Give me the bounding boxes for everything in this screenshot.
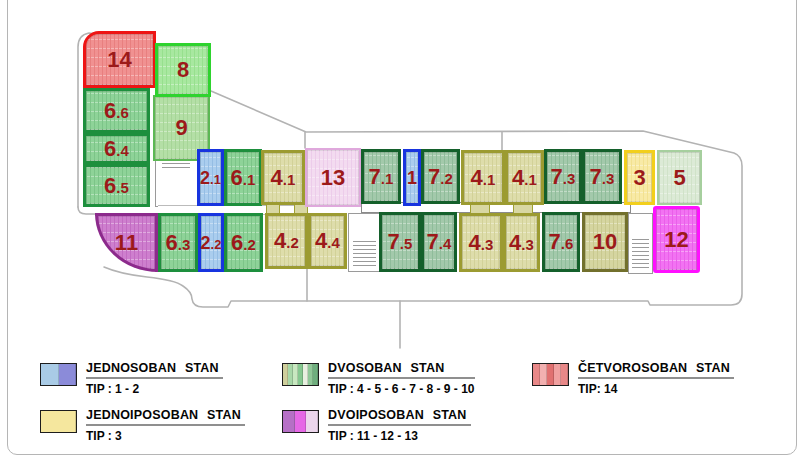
unit-12[interactable]: 12	[653, 206, 700, 273]
legend-item-cetvorosoban: ČETVOROSOBAN STAN TIP: 14	[532, 361, 734, 396]
stairs-icon	[353, 238, 376, 266]
unit-14[interactable]: 14	[83, 31, 156, 88]
unit-label: 14	[107, 49, 131, 71]
unit-label: 5	[673, 167, 685, 189]
legend-swatch	[282, 363, 319, 386]
legend-swatch	[40, 410, 77, 433]
unit-label: 6.4	[104, 138, 129, 160]
unit-label: 6.2	[231, 232, 256, 254]
unit-6.2[interactable]: 6.2	[224, 213, 263, 272]
unit-8[interactable]: 8	[155, 43, 211, 97]
legend-swatch	[532, 363, 569, 386]
unit-label: 7.4	[427, 231, 452, 253]
legend-swatch	[40, 363, 77, 386]
unit-label: 4.1	[471, 167, 496, 189]
unit-6.4[interactable]: 6.4	[83, 133, 150, 164]
legend-title: DVOIPOSOBAN STAN	[328, 408, 471, 426]
unit-7.5[interactable]: 7.5	[379, 212, 421, 272]
unit-7.4[interactable]: 7.4	[421, 212, 457, 272]
legend-tip: TIP: 14	[578, 382, 734, 396]
legend-tip: TIP : 1 - 2	[86, 382, 223, 396]
legend-title: DVOSOBAN STAN	[328, 361, 475, 379]
unit-label: 7.2	[428, 166, 453, 188]
legend-item-jednosoban: JEDNOSOBAN STAN TIP : 1 - 2	[40, 361, 223, 396]
legend-tip: TIP : 11 - 12 - 13	[328, 429, 471, 443]
unit-6.3[interactable]: 6.3	[158, 213, 198, 272]
legend-item-dvoiposoban: DVOIPOSOBAN STAN TIP : 11 - 12 - 13	[282, 408, 471, 443]
unit-4.1[interactable]: 4.1	[261, 150, 305, 205]
unit-4.1[interactable]: 4.1	[461, 150, 505, 205]
stairs-icon	[632, 238, 649, 268]
unit-label: 7.5	[388, 231, 413, 253]
unit-7.1[interactable]: 7.1	[361, 149, 401, 204]
unit-label: 2.2	[201, 234, 222, 252]
floor-plan: 14986.66.46.52.16.14.1137.117.24.14.17.3…	[0, 0, 800, 350]
unit-label: 4.1	[512, 167, 537, 189]
unit-label: 6.1	[231, 167, 256, 189]
unit-label: 7.3	[590, 166, 615, 188]
unit-7.6[interactable]: 7.6	[542, 212, 580, 272]
legend-item-jednoiposoban: JEDNOIPOSOBAN STAN TIP : 3	[40, 408, 245, 443]
unit-label: 4.1	[271, 167, 296, 189]
unit-label: 10	[593, 231, 617, 253]
legend-swatch	[282, 410, 319, 433]
stairwell-middle	[348, 213, 381, 272]
unit-2.1[interactable]: 2.1	[197, 149, 224, 206]
unit-4.3[interactable]: 4.3	[459, 213, 503, 272]
unit-label: 3	[633, 167, 645, 189]
unit-label: 11	[115, 232, 138, 254]
unit-label: 4.3	[469, 232, 494, 254]
unit-label: 4.4	[315, 230, 340, 252]
unit-label: 2.1	[200, 169, 221, 187]
unit-7.2[interactable]: 7.2	[421, 149, 460, 204]
legend-tip: TIP : 4 - 5 - 6 - 7 - 8 - 9 - 10	[328, 382, 475, 396]
stairwell-right	[628, 213, 653, 274]
unit-7.3[interactable]: 7.3	[544, 149, 582, 204]
unit-label: 13	[321, 167, 345, 189]
legend-title: JEDNOSOBAN STAN	[86, 361, 223, 379]
unit-4.1[interactable]: 4.1	[505, 150, 544, 205]
unit-1[interactable]: 1	[403, 149, 421, 206]
unit-label: 9	[175, 117, 187, 139]
unit-label: 6.6	[104, 100, 129, 122]
unit-label: 7.6	[549, 231, 574, 253]
unit-label: 8	[177, 59, 189, 81]
legend-title: ČETVOROSOBAN STAN	[578, 361, 734, 379]
legend-title: JEDNOIPOSOBAN STAN	[86, 408, 245, 426]
unit-6.5[interactable]: 6.5	[83, 164, 150, 207]
unit-10[interactable]: 10	[582, 212, 628, 272]
unit-13[interactable]: 13	[305, 148, 361, 207]
unit-5[interactable]: 5	[657, 150, 702, 205]
unit-label: 6.5	[104, 175, 129, 197]
unit-label: 1	[407, 169, 417, 187]
unit-label: 4.2	[274, 230, 299, 252]
unit-7.3[interactable]: 7.3	[582, 149, 622, 204]
unit-label: 7.1	[369, 166, 394, 188]
unit-label: 7.3	[551, 166, 576, 188]
unit-4.3[interactable]: 4.3	[503, 213, 540, 272]
unit-4.2[interactable]: 4.2	[265, 213, 308, 269]
unit-label: 6.3	[166, 232, 191, 254]
unit-4.4[interactable]: 4.4	[308, 213, 347, 269]
legend-item-dvosoban: DVOSOBAN STAN TIP : 4 - 5 - 6 - 7 - 8 - …	[282, 361, 475, 396]
unit-6.1[interactable]: 6.1	[224, 149, 262, 206]
unit-label: 4.3	[509, 232, 534, 254]
unit-6.6[interactable]: 6.6	[83, 88, 150, 133]
legend-tip: TIP : 3	[86, 429, 245, 443]
unit-2.2[interactable]: 2.2	[198, 213, 224, 272]
unit-label: 12	[664, 229, 688, 251]
unit-3[interactable]: 3	[624, 150, 655, 205]
